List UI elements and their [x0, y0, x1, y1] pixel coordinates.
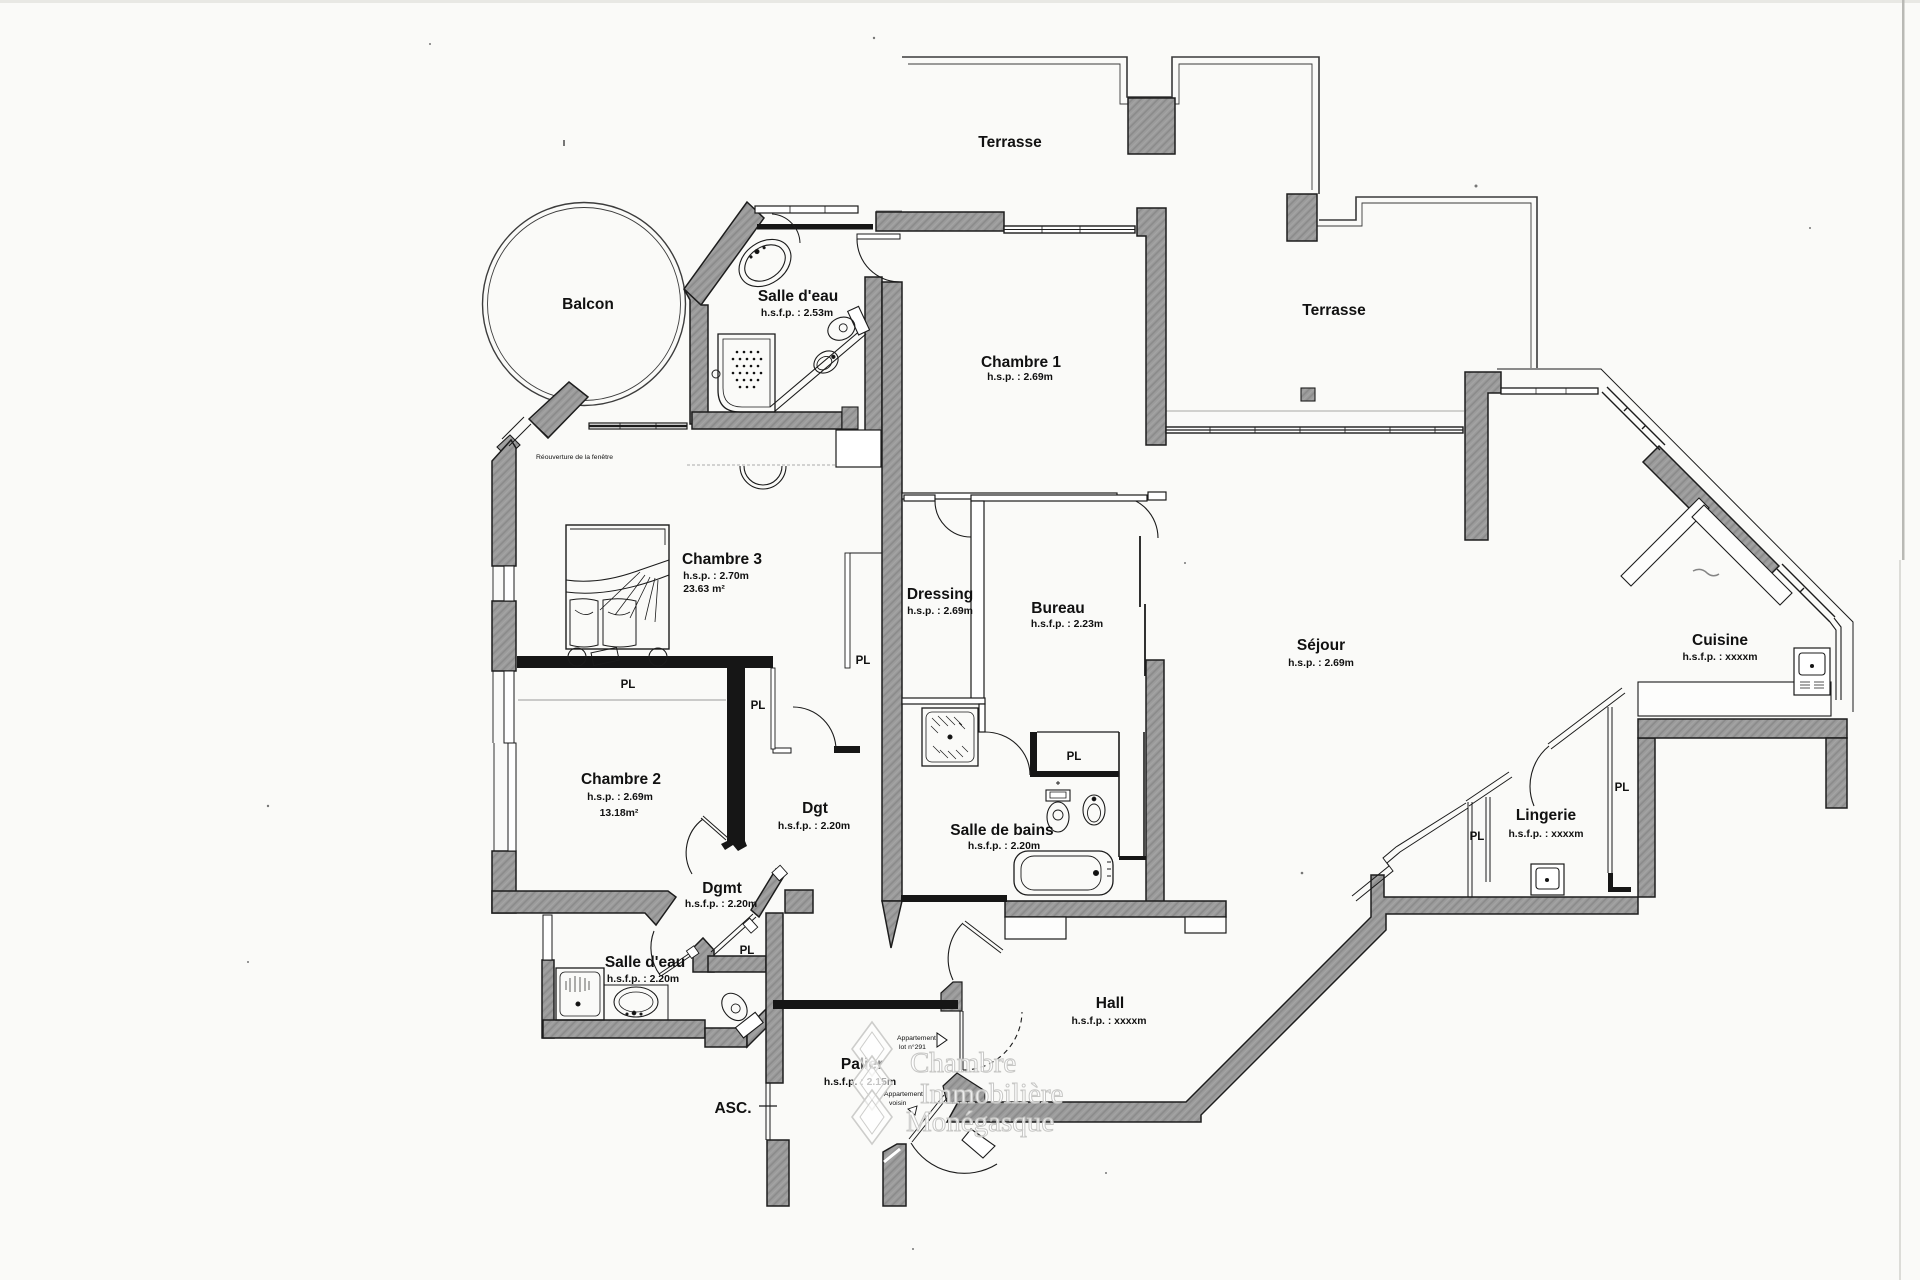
svg-text:Chambre: Chambre — [910, 1047, 1016, 1079]
svg-text:Salle de bains: Salle de bains — [950, 822, 1053, 839]
svg-text:Chambre 2: Chambre 2 — [581, 771, 661, 788]
svg-text:voisin: voisin — [889, 1100, 907, 1107]
svg-text:h.s.p. : 2.69m: h.s.p. : 2.69m — [907, 606, 973, 617]
svg-text:PL: PL — [621, 679, 636, 691]
svg-text:PL: PL — [1470, 831, 1485, 843]
svg-text:Cuisine: Cuisine — [1692, 632, 1748, 649]
svg-text:h.s.p. : 2.69m: h.s.p. : 2.69m — [987, 372, 1053, 383]
svg-text:Terrasse: Terrasse — [1302, 302, 1366, 319]
svg-text:h.s.f.p. : xxxxm: h.s.f.p. : xxxxm — [1508, 829, 1583, 840]
svg-text:Monégasque: Monégasque — [906, 1106, 1054, 1138]
svg-text:Réouverture de la fenêtre: Réouverture de la fenêtre — [536, 454, 613, 461]
svg-text:PL: PL — [1067, 751, 1082, 763]
svg-text:Chambre 3: Chambre 3 — [682, 551, 762, 568]
svg-text:Hall: Hall — [1096, 995, 1124, 1012]
svg-text:Séjour: Séjour — [1297, 637, 1345, 654]
svg-text:h.s.f.p. : xxxxm: h.s.f.p. : xxxxm — [1071, 1016, 1146, 1027]
svg-text:h.s.f.p. : 2.23m: h.s.f.p. : 2.23m — [1031, 619, 1103, 630]
svg-text:Dressing: Dressing — [907, 586, 973, 603]
svg-text:Appartement: Appartement — [897, 1035, 936, 1042]
svg-text:PL: PL — [740, 945, 755, 957]
svg-text:Terrasse: Terrasse — [978, 134, 1042, 151]
svg-text:PL: PL — [751, 700, 766, 712]
svg-text:Dgmt: Dgmt — [702, 880, 742, 897]
svg-text:h.s.f.p. : 2.20m: h.s.f.p. : 2.20m — [968, 841, 1040, 852]
svg-text:h.s.f.p. : 2.20m: h.s.f.p. : 2.20m — [607, 974, 679, 985]
svg-text:Bureau: Bureau — [1031, 600, 1084, 617]
svg-text:ASC.: ASC. — [714, 1100, 751, 1117]
svg-text:Balcon: Balcon — [562, 296, 614, 313]
svg-text:PL: PL — [1615, 782, 1630, 794]
svg-text:PL: PL — [856, 655, 871, 667]
svg-text:h.s.f.p. : 2.20m: h.s.f.p. : 2.20m — [778, 821, 850, 832]
svg-text:Chambre 1: Chambre 1 — [981, 354, 1061, 371]
svg-text:23.63 m²: 23.63 m² — [683, 584, 725, 595]
svg-text:Dgt: Dgt — [802, 800, 828, 817]
svg-text:Salle d'eau: Salle d'eau — [758, 288, 838, 305]
svg-text:h.s.p. : 2.69m: h.s.p. : 2.69m — [1288, 658, 1354, 669]
svg-text:Salle d'eau: Salle d'eau — [605, 954, 685, 971]
svg-text:Lingerie: Lingerie — [1516, 807, 1577, 824]
svg-text:h.s.f.p. : 2.53m: h.s.f.p. : 2.53m — [761, 308, 833, 319]
svg-text:h.s.p. : 2.69m: h.s.p. : 2.69m — [587, 792, 653, 803]
svg-text:h.s.p. : 2.70m: h.s.p. : 2.70m — [683, 571, 749, 582]
svg-text:h.s.f.p. : 2.20m: h.s.f.p. : 2.20m — [685, 899, 757, 910]
svg-text:h.s.f.p. : xxxxm: h.s.f.p. : xxxxm — [1682, 652, 1757, 663]
svg-text:Appartement: Appartement — [884, 1091, 923, 1098]
svg-text:13.18m²: 13.18m² — [600, 808, 639, 819]
